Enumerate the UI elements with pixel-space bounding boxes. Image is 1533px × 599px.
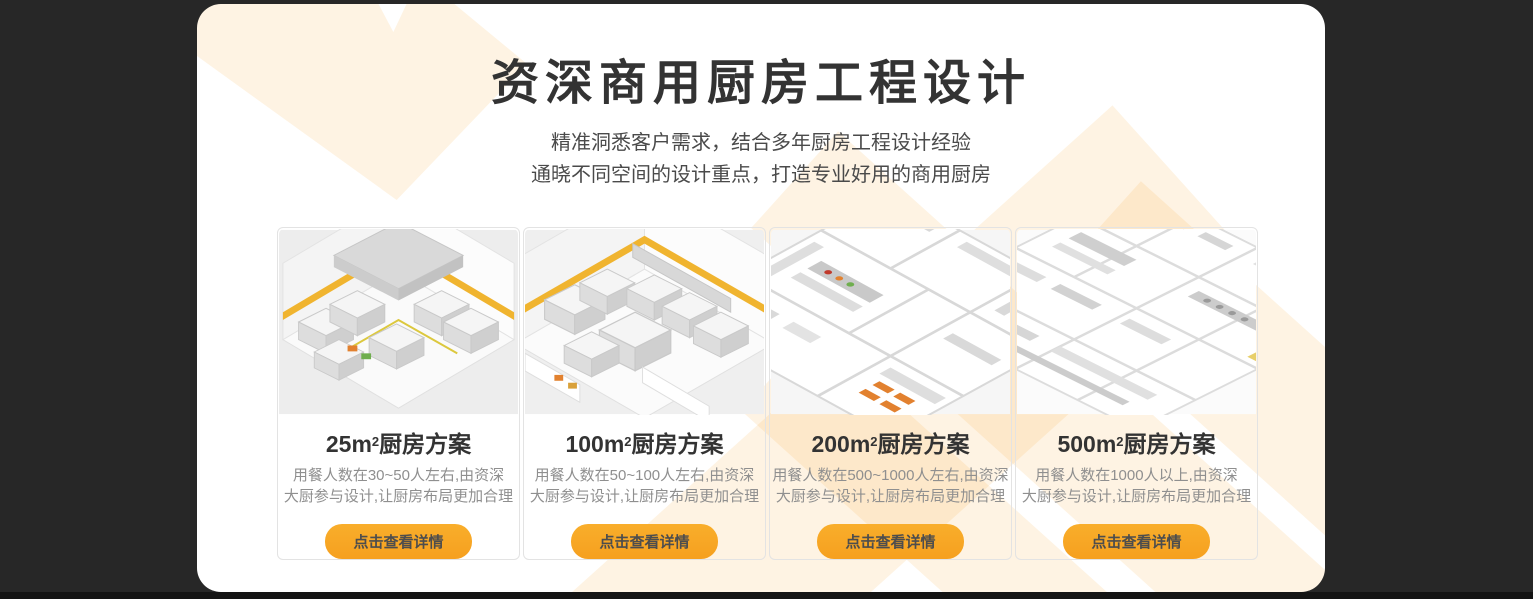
card-title: 500m2厨房方案: [1016, 428, 1257, 458]
card-area: 25m: [326, 431, 372, 457]
card-description: 用餐人数在30~50人左右,由资深 大厨参与设计,让厨房布局更加合理: [278, 465, 519, 507]
card-title-suffix: 厨房方案: [632, 431, 724, 457]
card-area-sup: 2: [870, 434, 877, 449]
plan-card-100: 100m2厨房方案 用餐人数在50~100人左右,由资深 大厨参与设计,让厨房布…: [523, 227, 766, 560]
bottom-dark-bar: [0, 592, 1533, 599]
view-details-button-25[interactable]: 点击查看详情: [325, 524, 471, 559]
plan-card-500: 500m2厨房方案 用餐人数在1000人以上,由资深 大厨参与设计,让厨房布局更…: [1015, 227, 1258, 560]
card-title: 100m2厨房方案: [524, 428, 765, 458]
plan-cards-row: 25m2厨房方案 用餐人数在30~50人左右,由资深 大厨参与设计,让厨房布局更…: [277, 227, 1258, 560]
kitchen-render-25-image: [279, 229, 518, 415]
card-desc-line-1: 用餐人数在1000人以上,由资深: [1016, 465, 1257, 486]
card-description: 用餐人数在500~1000人左右,由资深 大厨参与设计,让厨房布局更加合理: [770, 465, 1011, 507]
subtitle-line-2: 通晓不同空间的设计重点，打造专业好用的商用厨房: [197, 159, 1325, 191]
card-area: 100m: [565, 431, 624, 457]
card-area: 500m: [1057, 431, 1116, 457]
subtitle-line-1: 精准洞悉客户需求，结合多年厨房工程设计经验: [197, 127, 1325, 159]
card-area-sup: 2: [624, 434, 631, 449]
kitchen-render-100-image: [525, 229, 764, 415]
card-area: 200m: [811, 431, 870, 457]
content-panel: 资深商用厨房工程设计 精准洞悉客户需求，结合多年厨房工程设计经验 通晓不同空间的…: [197, 4, 1325, 592]
kitchen-render-100-svg: [525, 229, 764, 415]
card-desc-line-2: 大厨参与设计,让厨房布局更加合理: [770, 486, 1011, 507]
kitchen-render-25-svg: [279, 229, 518, 415]
card-desc-line-2: 大厨参与设计,让厨房布局更加合理: [278, 486, 519, 507]
section-header: 资深商用厨房工程设计 精准洞悉客户需求，结合多年厨房工程设计经验 通晓不同空间的…: [197, 58, 1325, 191]
card-desc-line-2: 大厨参与设计,让厨房布局更加合理: [1016, 486, 1257, 507]
card-title-suffix: 厨房方案: [878, 431, 970, 457]
card-title: 25m2厨房方案: [278, 428, 519, 458]
card-description: 用餐人数在1000人以上,由资深 大厨参与设计,让厨房布局更加合理: [1016, 465, 1257, 507]
view-details-button-100[interactable]: 点击查看详情: [571, 524, 717, 559]
card-desc-line-2: 大厨参与设计,让厨房布局更加合理: [524, 486, 765, 507]
view-details-button-200[interactable]: 点击查看详情: [817, 524, 963, 559]
card-area-sup: 2: [1116, 434, 1123, 449]
card-title: 200m2厨房方案: [770, 428, 1011, 458]
card-title-suffix: 厨房方案: [379, 431, 471, 457]
view-details-button-500[interactable]: 点击查看详情: [1063, 524, 1209, 559]
kitchen-render-200-image: [771, 229, 1010, 415]
plan-card-25: 25m2厨房方案 用餐人数在30~50人左右,由资深 大厨参与设计,让厨房布局更…: [277, 227, 520, 560]
card-description: 用餐人数在50~100人左右,由资深 大厨参与设计,让厨房布局更加合理: [524, 465, 765, 507]
plan-card-200: 200m2厨房方案 用餐人数在500~1000人左右,由资深 大厨参与设计,让厨…: [769, 227, 1012, 560]
kitchen-render-500-image: [1017, 229, 1256, 415]
kitchen-render-500-svg: [1017, 229, 1256, 415]
kitchen-design-section: 资深商用厨房工程设计 精准洞悉客户需求，结合多年厨房工程设计经验 通晓不同空间的…: [0, 0, 1533, 599]
card-title-suffix: 厨房方案: [1124, 431, 1216, 457]
section-subtitle: 精准洞悉客户需求，结合多年厨房工程设计经验 通晓不同空间的设计重点，打造专业好用…: [197, 127, 1325, 191]
card-desc-line-1: 用餐人数在50~100人左右,由资深: [524, 465, 765, 486]
page-title: 资深商用厨房工程设计: [197, 58, 1325, 111]
card-desc-line-1: 用餐人数在500~1000人左右,由资深: [770, 465, 1011, 486]
card-desc-line-1: 用餐人数在30~50人左右,由资深: [278, 465, 519, 486]
kitchen-render-200-svg: [771, 229, 1010, 415]
